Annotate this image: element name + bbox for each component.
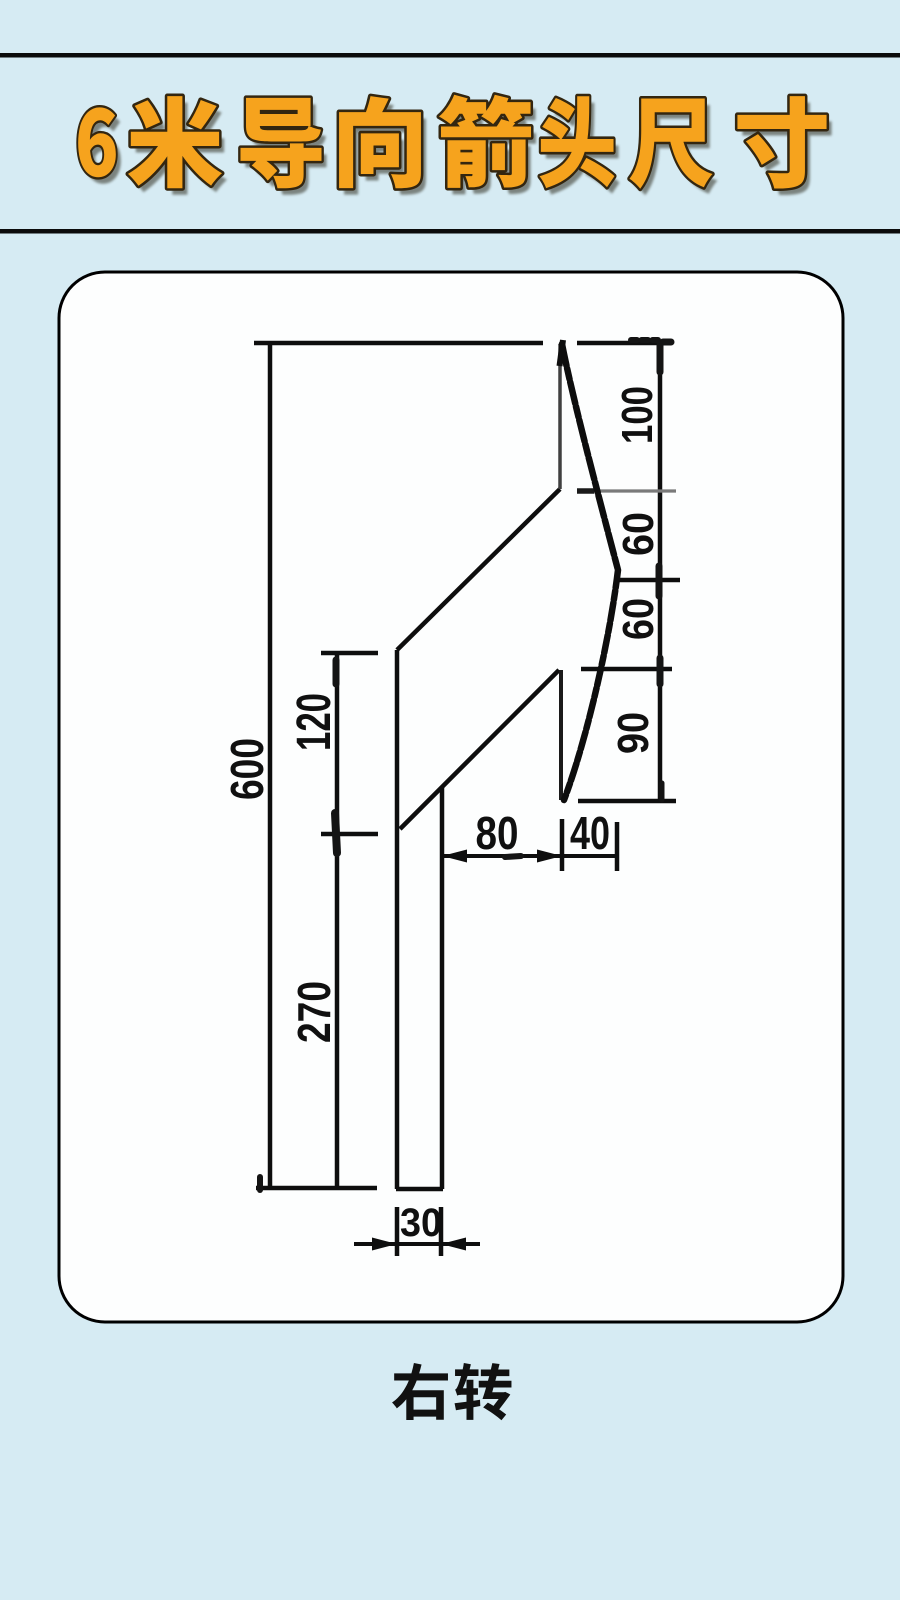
svg-text:90: 90 [609,712,658,754]
svg-text:30: 30 [400,1201,442,1245]
svg-text:600: 600 [221,738,273,800]
svg-text:80: 80 [476,807,519,859]
svg-text:270: 270 [288,981,340,1043]
svg-text:40: 40 [570,807,610,859]
svg-text:60: 60 [614,598,663,640]
svg-text:100: 100 [613,386,662,444]
svg-text:60: 60 [614,512,663,556]
svg-text:120: 120 [288,693,341,751]
